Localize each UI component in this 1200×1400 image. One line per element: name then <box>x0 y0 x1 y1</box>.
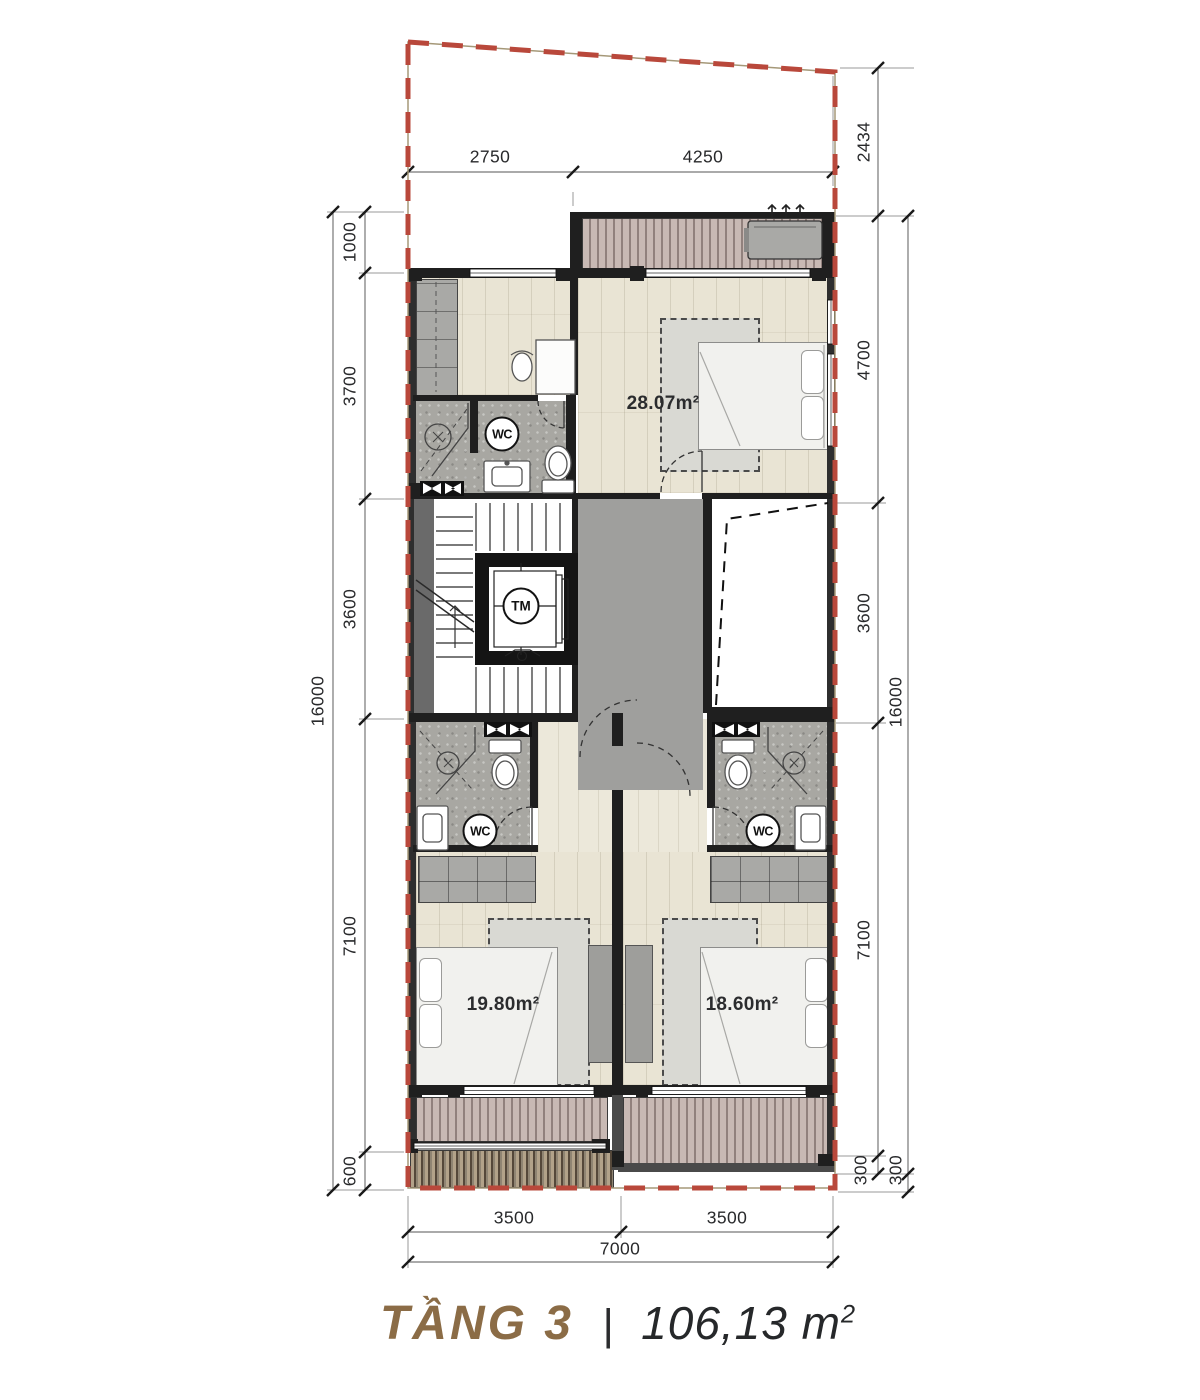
wc-badge: WC <box>746 814 781 849</box>
dim-right-4: 300 <box>851 1155 872 1185</box>
dim-right-3: 7100 <box>854 920 875 961</box>
desk-icon <box>536 340 575 394</box>
dim-bottom-0: 3500 <box>494 1208 535 1229</box>
void-outline <box>716 503 828 705</box>
dim-top-0: 2750 <box>470 147 511 168</box>
dim-right-outer-1: 300 <box>886 1155 907 1185</box>
floor-name: TẦNG 3 <box>380 1296 574 1351</box>
floor-area-value: 106,13 m <box>641 1297 841 1349</box>
dim-left-3: 7100 <box>340 916 361 957</box>
right-bedroom-area-label: 18.60m² <box>706 994 779 1016</box>
plan-title: TẦNG 3 | 106,13 m2 <box>380 1296 856 1351</box>
dim-left-2: 3600 <box>340 589 361 630</box>
dim-left-4: 600 <box>340 1156 361 1186</box>
floor-plan: 28.07m² 19.80m² 18.60m² WC WC WC TM 2750… <box>0 0 1200 1400</box>
walls <box>408 212 835 1172</box>
dim-bottom-2: 7000 <box>600 1239 641 1260</box>
sink-icon <box>417 806 448 850</box>
shower-icon <box>420 727 475 794</box>
dim-right-1: 4700 <box>854 340 875 381</box>
dim-bottom-1: 3500 <box>707 1208 748 1229</box>
title-separator: | <box>602 1301 613 1350</box>
wc-badge: WC <box>463 814 498 849</box>
sink-icon <box>484 461 530 492</box>
left-bedroom-area-label: 19.80m² <box>467 994 540 1016</box>
toilet-icon <box>489 740 521 789</box>
floor-area-sup: 2 <box>841 1301 856 1329</box>
toilet-icon <box>542 446 574 493</box>
floor-area: 106,13 m2 <box>641 1296 856 1350</box>
dim-right-2: 3600 <box>854 593 875 634</box>
dim-top-1: 4250 <box>683 147 724 168</box>
shower-icon <box>768 727 823 794</box>
plan-linework <box>0 0 1200 1400</box>
dim-left-outer-0: 16000 <box>308 676 329 727</box>
sink-icon <box>795 806 826 850</box>
wc-badge: WC <box>485 417 520 452</box>
elevator-badge: TM <box>503 588 540 625</box>
toilet-icon <box>722 740 754 789</box>
shower-icon <box>421 403 468 476</box>
master-bedroom-area-label: 28.07m² <box>627 393 700 415</box>
chair-icon <box>511 351 533 381</box>
dim-left-1: 3700 <box>340 366 361 407</box>
dim-left-0: 1000 <box>340 222 361 263</box>
dim-right-outer-0: 16000 <box>886 677 907 728</box>
dim-right-0: 2434 <box>854 122 875 163</box>
